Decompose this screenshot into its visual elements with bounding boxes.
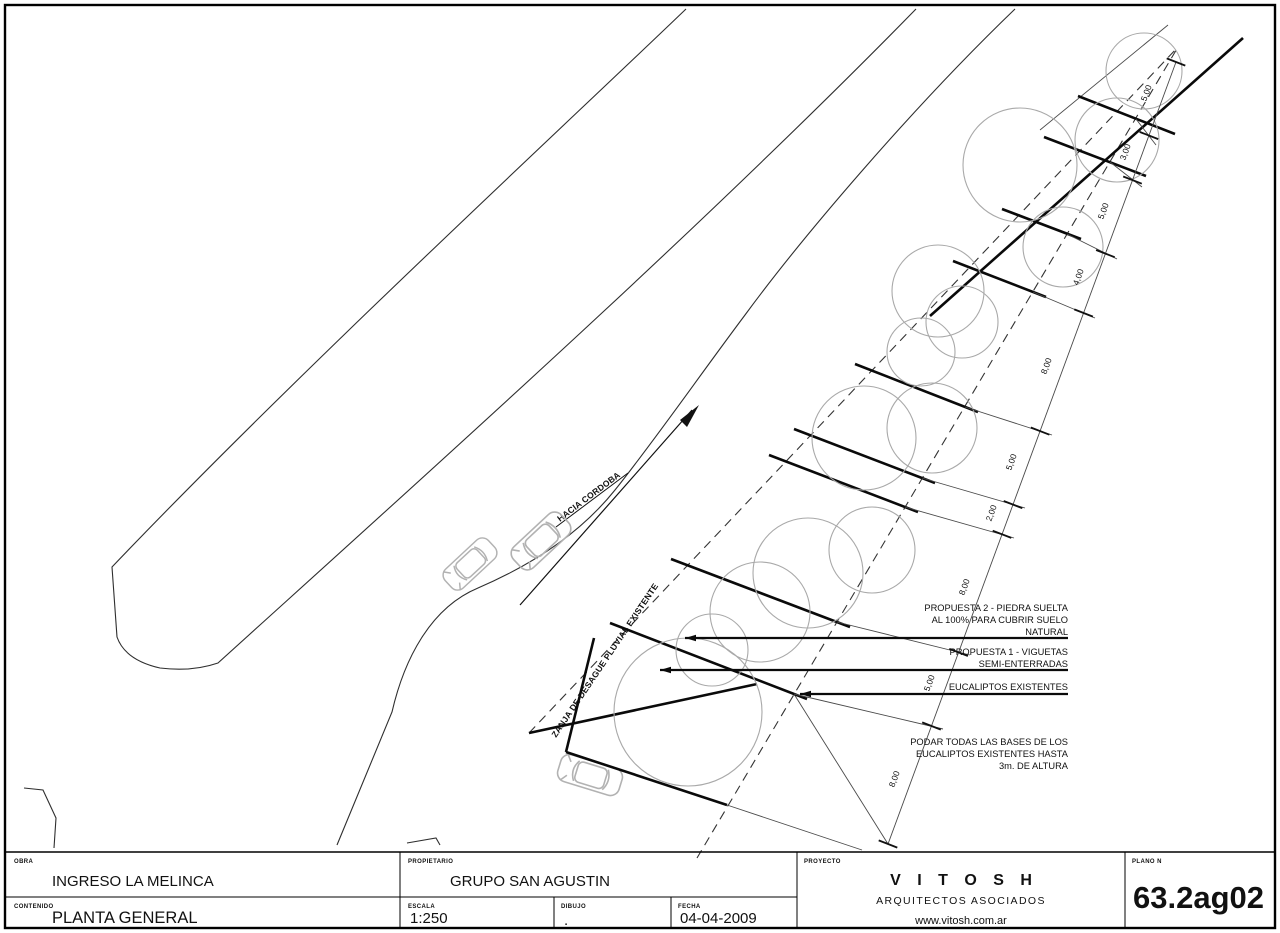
obra-value: INGRESO LA MELINCA bbox=[52, 873, 214, 890]
propietario-value: GRUPO SAN AGUSTIN bbox=[450, 873, 610, 890]
plano-label: PLANO N bbox=[1132, 859, 1162, 865]
site-plan-canvas: HACIA CORDOBA 5,003,005,0 bbox=[0, 0, 1280, 933]
firm-website: www.vitosh.com.ar bbox=[914, 915, 1007, 927]
propietario-label: PROPIETARIO bbox=[408, 859, 453, 865]
annotation-text: NATURAL bbox=[1025, 627, 1068, 637]
dibujo-value: . bbox=[564, 912, 568, 929]
annotation-text: EUCALIPTOS EXISTENTES bbox=[949, 682, 1068, 692]
annotation-text: EUCALIPTOS EXISTENTES HASTA bbox=[916, 749, 1069, 759]
annotation-text: 3m. DE ALTURA bbox=[999, 761, 1069, 771]
contenido-value: PLANTA GENERAL bbox=[52, 909, 198, 927]
firm-subtitle: ARQUITECTOS ASOCIADOS bbox=[876, 895, 1046, 907]
dibujo-label: DIBUJO bbox=[561, 904, 586, 910]
sheet-border-frame bbox=[5, 5, 1275, 928]
escala-value: 1:250 bbox=[410, 910, 448, 927]
annotation-text: PROPUESTA 2 - PIEDRA SUELTA bbox=[924, 603, 1068, 613]
annotation-text: AL 100% PARA CUBRIR SUELO bbox=[932, 615, 1068, 625]
annotation-text: PROPUESTA 1 - VIGUETAS bbox=[950, 647, 1068, 657]
fecha-value: 04-04-2009 bbox=[680, 910, 757, 927]
firm-name: V I T O S H bbox=[890, 872, 1038, 889]
proyecto-label: PROYECTO bbox=[804, 859, 841, 865]
drawing-sheet: HACIA CORDOBA 5,003,005,0 bbox=[0, 0, 1280, 933]
obra-label: OBRA bbox=[14, 859, 34, 865]
plano-number: 63.2ag02 bbox=[1133, 880, 1264, 915]
annotation-text: PODAR TODAS LAS BASES DE LOS bbox=[910, 737, 1068, 747]
annotation-text: SEMI-ENTERRADAS bbox=[979, 659, 1068, 669]
contenido-label: CONTENIDO bbox=[14, 904, 54, 910]
